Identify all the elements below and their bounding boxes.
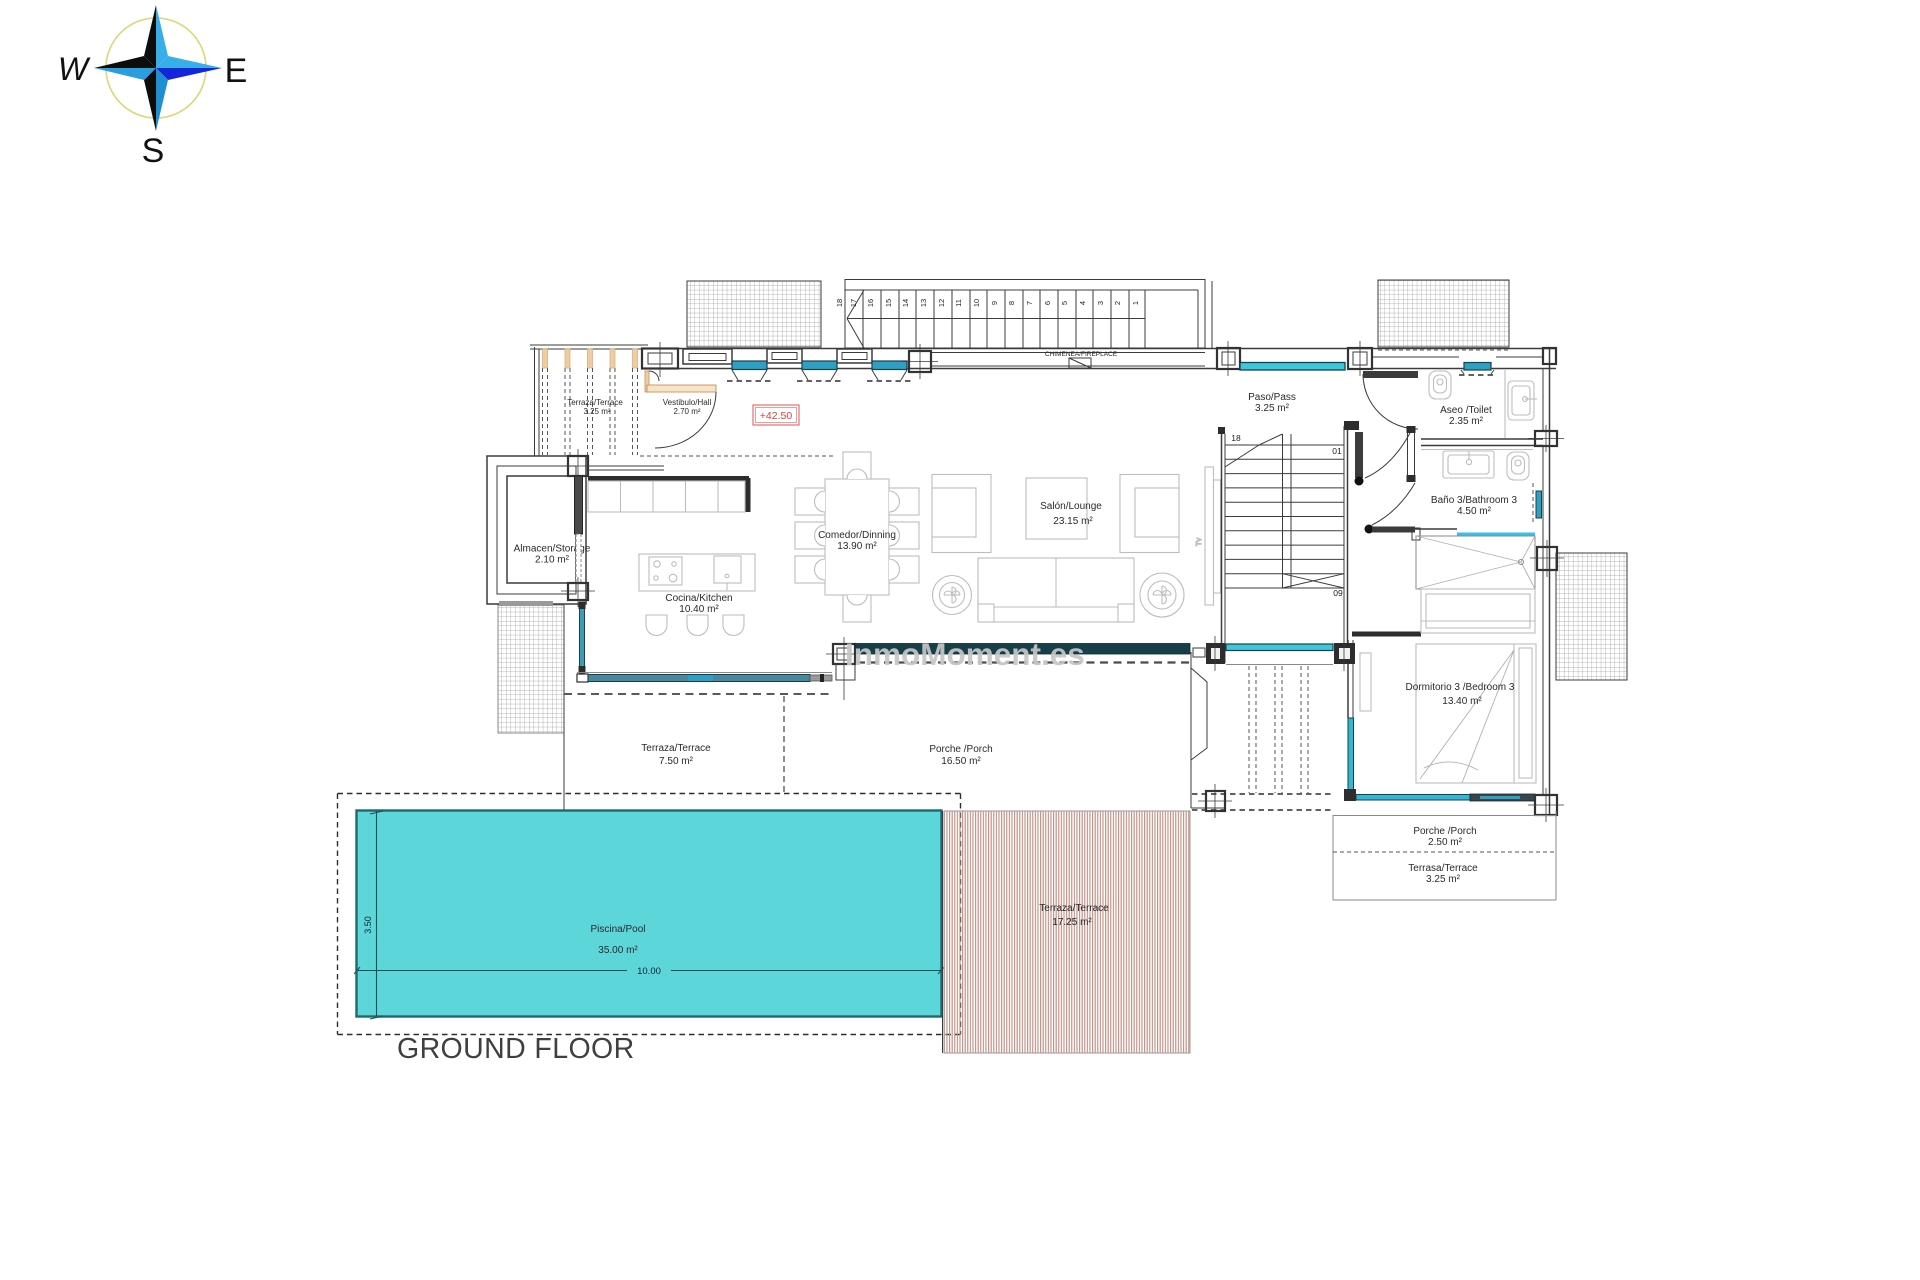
svg-text:8: 8: [1007, 301, 1016, 305]
svg-text:12: 12: [937, 299, 946, 307]
svg-text:Cocina/Kitchen: Cocina/Kitchen: [665, 593, 732, 604]
svg-text:16: 16: [866, 299, 875, 307]
svg-text:3: 3: [1096, 301, 1105, 305]
svg-text:1: 1: [1131, 301, 1140, 305]
svg-text:13.90 m²: 13.90 m²: [837, 541, 877, 552]
svg-text:17: 17: [849, 299, 858, 307]
svg-text:14: 14: [901, 299, 910, 307]
svg-text:Terraza/Terrace: Terraza/Terrace: [567, 398, 623, 407]
svg-text:Tv: Tv: [1194, 538, 1203, 547]
svg-text:6: 6: [1043, 301, 1052, 305]
svg-text:InmoMoment.es: InmoMoment.es: [845, 636, 1085, 672]
svg-text:Porche /Porch: Porche /Porch: [1413, 826, 1476, 837]
svg-text:Comedor/Dinning: Comedor/Dinning: [818, 530, 896, 541]
svg-text:Salón/Lounge: Salón/Lounge: [1040, 501, 1102, 512]
svg-text:E: E: [225, 52, 248, 90]
svg-text:3.50: 3.50: [363, 916, 373, 934]
svg-text:Piscina/Pool: Piscina/Pool: [590, 924, 645, 935]
svg-text:3.25 m²: 3.25 m²: [1255, 403, 1290, 414]
svg-text:10: 10: [972, 299, 981, 307]
svg-text:4: 4: [1078, 301, 1087, 305]
svg-text:Dormitorio 3 /Bedroom 3: Dormitorio 3 /Bedroom 3: [1406, 682, 1515, 693]
svg-text:13: 13: [919, 299, 928, 307]
svg-text:GROUND FLOOR: GROUND FLOOR: [397, 1033, 635, 1065]
svg-text:Porche /Porch: Porche /Porch: [929, 744, 992, 755]
svg-text:Terrasa/Terrace: Terrasa/Terrace: [1408, 863, 1478, 874]
svg-text:2.10 m²: 2.10 m²: [535, 555, 570, 566]
svg-text:2.50 m²: 2.50 m²: [1428, 837, 1463, 848]
svg-text:10.00: 10.00: [637, 966, 661, 977]
svg-text:2.35 m²: 2.35 m²: [1449, 416, 1484, 427]
svg-text:01: 01: [1332, 446, 1342, 456]
svg-text:11: 11: [954, 299, 963, 307]
svg-text:Vestibulo/Hall: Vestibulo/Hall: [663, 398, 712, 407]
svg-text:2.70 m²: 2.70 m²: [673, 407, 700, 416]
svg-text:23.15 m²: 23.15 m²: [1053, 516, 1093, 527]
svg-text:9: 9: [990, 301, 999, 305]
svg-text:4.50 m²: 4.50 m²: [1457, 506, 1492, 517]
svg-text:13.40 m²: 13.40 m²: [1442, 696, 1482, 707]
svg-text:18: 18: [1231, 433, 1241, 443]
svg-text:S: S: [142, 132, 165, 170]
svg-text:5: 5: [1060, 301, 1069, 305]
svg-text:2: 2: [1113, 301, 1122, 305]
svg-text:W: W: [58, 51, 91, 87]
svg-text:Terraza/Terrace: Terraza/Terrace: [1039, 903, 1109, 914]
svg-text:15: 15: [884, 299, 893, 307]
svg-text:09: 09: [1333, 588, 1343, 598]
svg-text:10.40 m²: 10.40 m²: [679, 604, 719, 615]
svg-text:Baño 3/Bathroom 3: Baño 3/Bathroom 3: [1431, 495, 1518, 506]
svg-text:16.50 m²: 16.50 m²: [941, 756, 981, 767]
svg-text:7.50 m²: 7.50 m²: [659, 756, 694, 767]
svg-text:Aseo /Toilet: Aseo /Toilet: [1440, 405, 1492, 416]
svg-text:Terraza/Terrace: Terraza/Terrace: [641, 743, 711, 754]
svg-text:3.25 m²: 3.25 m²: [583, 407, 610, 416]
svg-text:Paso/Pass: Paso/Pass: [1248, 392, 1296, 403]
svg-text:35.00 m²: 35.00 m²: [598, 945, 638, 956]
svg-text:7: 7: [1025, 301, 1034, 305]
svg-text:+42.50: +42.50: [760, 410, 793, 422]
svg-text:CHIMENEA/FIREPLACE: CHIMENEA/FIREPLACE: [1045, 351, 1118, 358]
svg-text:18: 18: [835, 299, 844, 307]
svg-text:3.25 m²: 3.25 m²: [1426, 874, 1461, 885]
svg-text:17.25 m²: 17.25 m²: [1052, 917, 1092, 928]
